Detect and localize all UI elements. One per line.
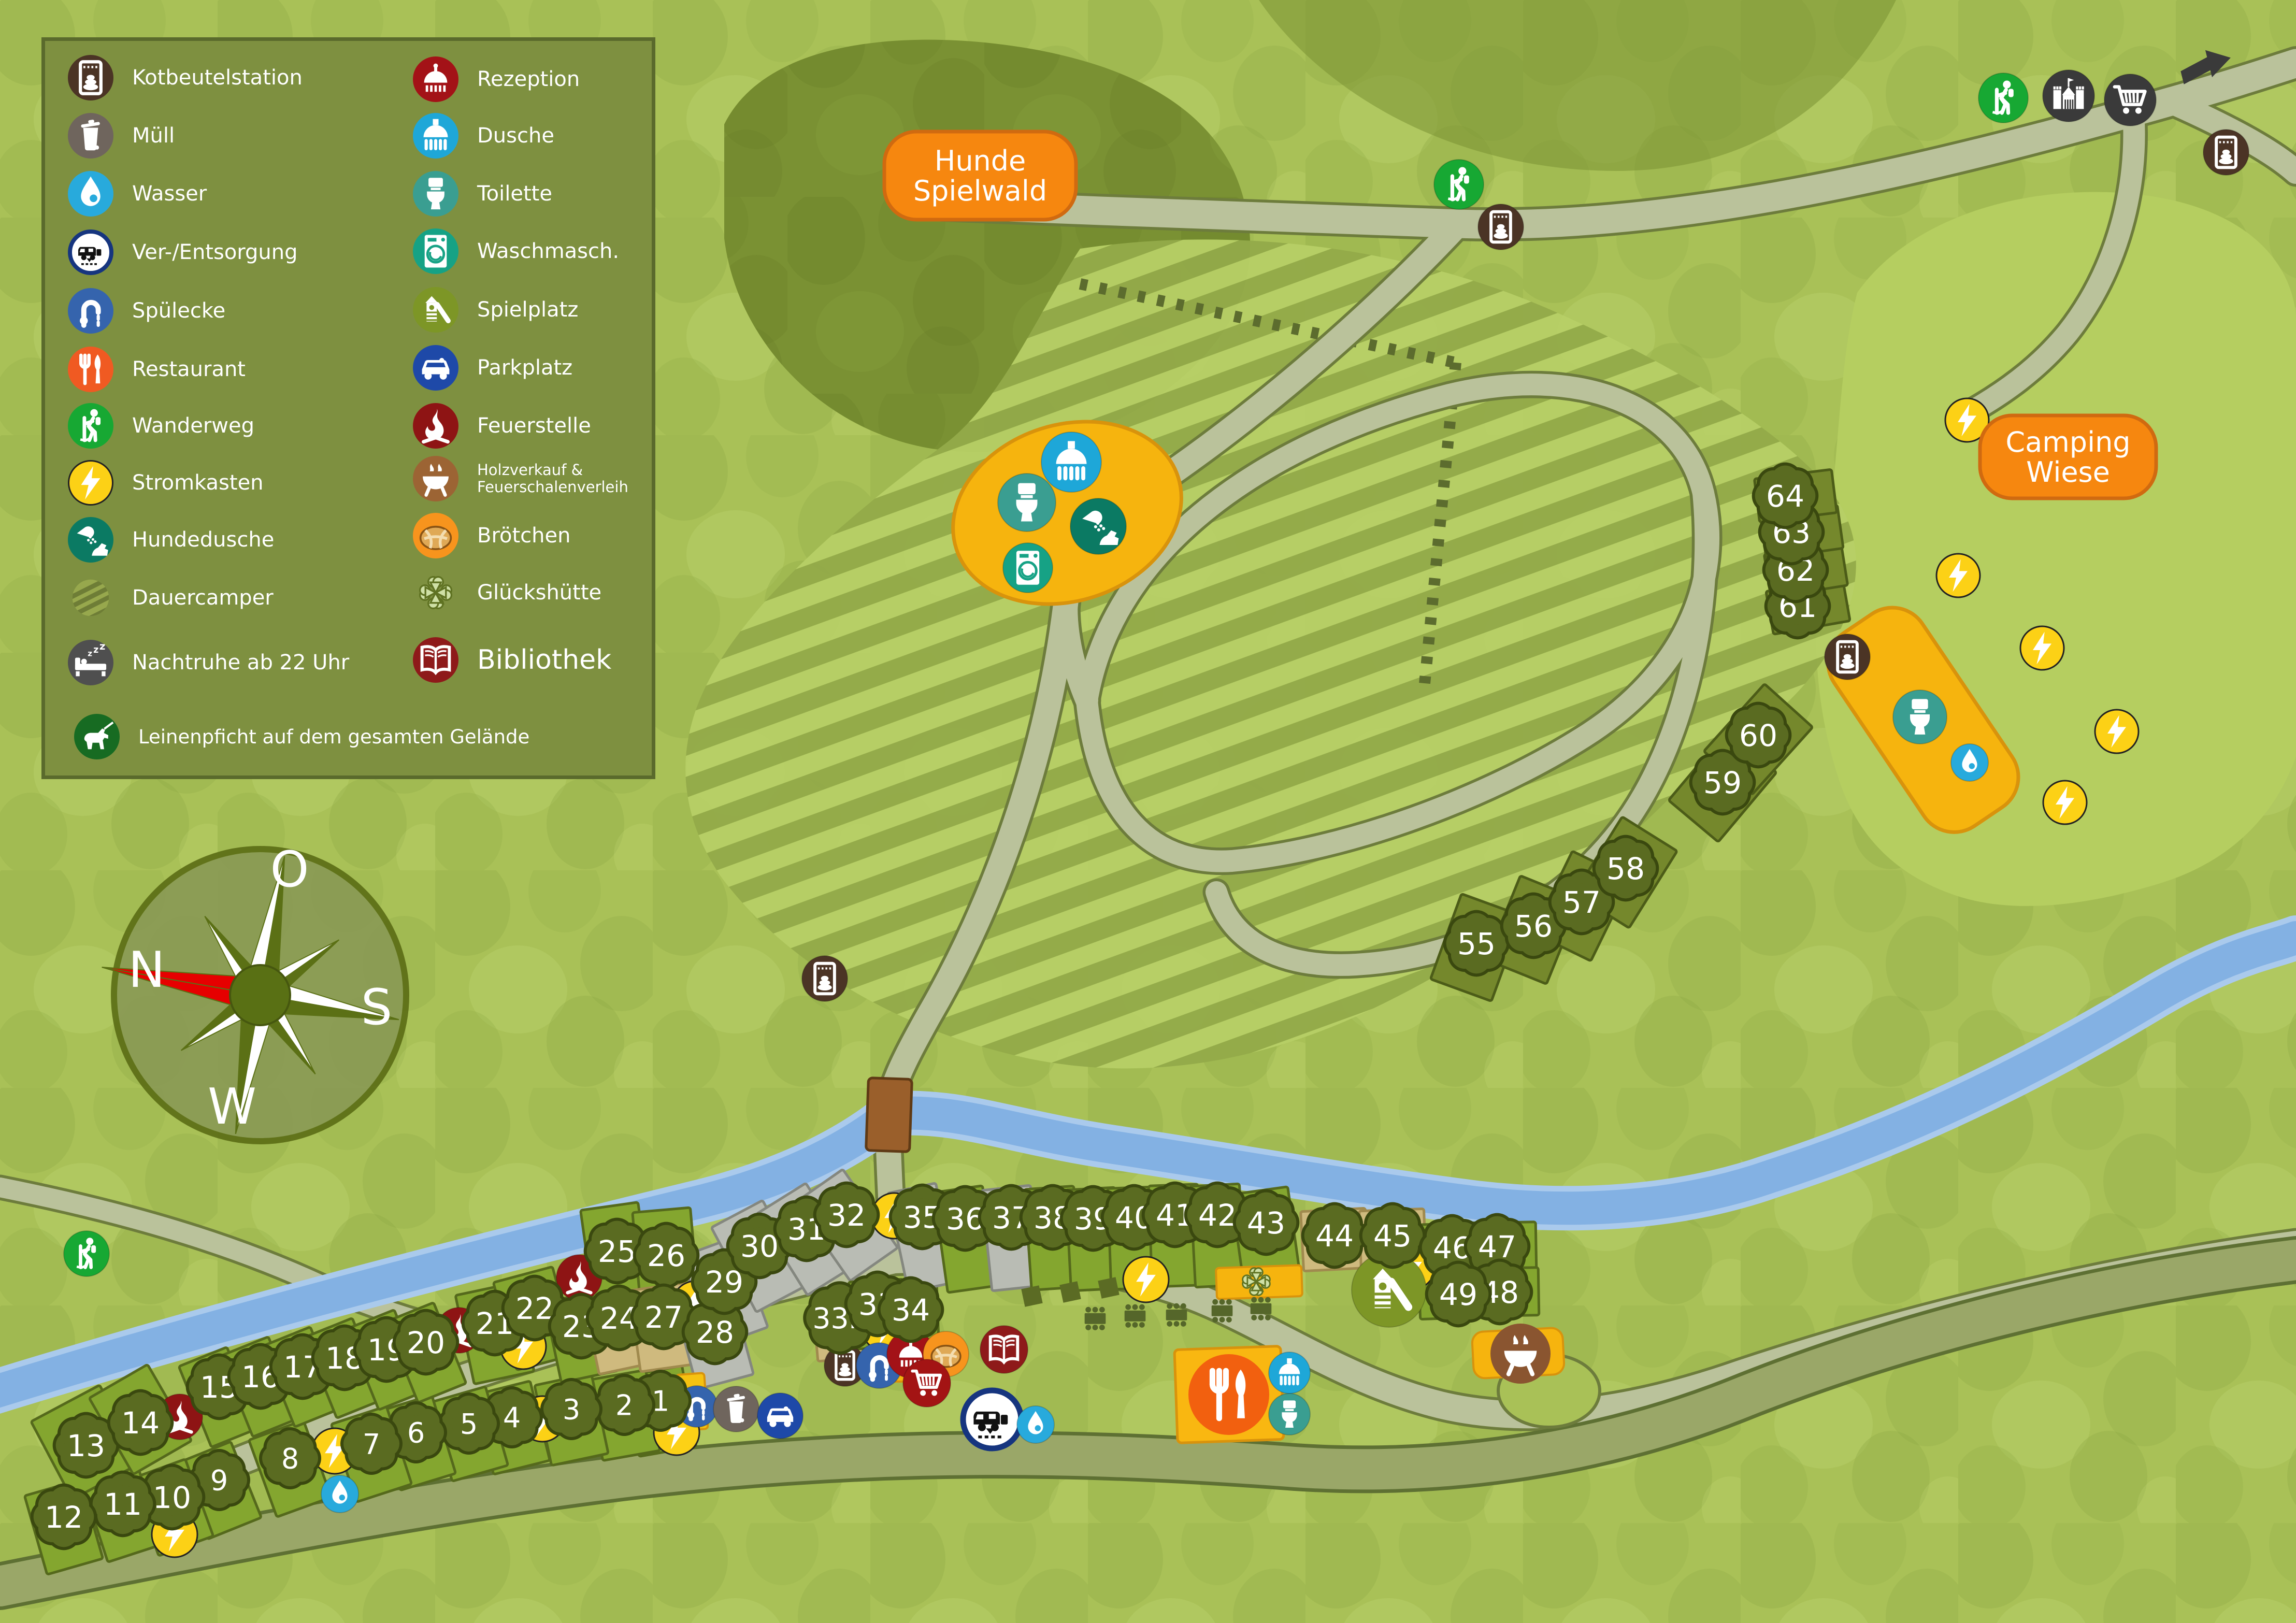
wanderweg-icon (68, 403, 113, 449)
legend-item-wasser: Wasser (68, 171, 207, 217)
legend-label-line: Müll (132, 124, 175, 148)
toilette-icon (1893, 690, 1947, 744)
legend-label-line: Spielplatz (477, 298, 578, 322)
pitch-number: 64 (1766, 479, 1804, 514)
legend-item-dusche: Dusche (413, 113, 554, 159)
pitch-number: 30 (740, 1229, 779, 1264)
legend-label-line: Brötchen (477, 524, 570, 548)
legend-label: Leinenpficht auf dem gesamten Gelände (138, 726, 529, 748)
pitch-number: 8 (281, 1442, 299, 1475)
toilette-icon (1269, 1394, 1310, 1435)
legend-item-leinenpflicht: Leinenpficht auf dem gesamten Gelände (74, 714, 529, 759)
waschmasch-icon (413, 228, 458, 274)
pitch-number: 55 (1457, 926, 1496, 961)
legend-label: Wasser (132, 182, 207, 206)
legend-label-line: Ver-/Entsorgung (132, 240, 298, 264)
nachtruhe-icon: zzz (68, 640, 113, 685)
table-icon (1251, 1297, 1272, 1320)
legend-label-line: Feuerstelle (477, 414, 591, 438)
pitch-badge-3: 3 (540, 1378, 602, 1440)
pitch-badge-20: 20 (393, 1309, 460, 1376)
pitch-number: 9 (210, 1464, 228, 1497)
restaurant-icon (1188, 1354, 1269, 1435)
legend-item-feuerstelle: Feuerstelle (413, 403, 591, 449)
bridge (866, 1078, 912, 1152)
pitch-number: 28 (696, 1315, 734, 1350)
camping-wiese-label: CampingWiese (1980, 415, 2156, 498)
legend-item-bibliothek: Bibliothek (413, 637, 611, 683)
wasser-icon (68, 171, 113, 217)
legend-label-line: Bibliothek (477, 644, 611, 676)
table-icon (1085, 1307, 1106, 1330)
table-icon (1212, 1299, 1233, 1323)
pitch-number: 3 (563, 1393, 580, 1426)
legend-label: Parkplatz (477, 356, 572, 380)
pitch-badge-2: 2 (593, 1374, 655, 1436)
pitch-number: 7 (363, 1428, 380, 1460)
pitch-badge-32: 32 (813, 1182, 880, 1248)
dusche-icon (1269, 1352, 1310, 1394)
spielplatz-icon (413, 287, 458, 333)
legend-item-dauercamper: Dauercamper (68, 575, 274, 621)
pitch-number: 42 (1198, 1198, 1237, 1233)
pitch-number: 56 (1514, 909, 1553, 944)
stromkasten-icon (1123, 1257, 1169, 1302)
waschmasch-icon (1003, 543, 1053, 593)
legend-label-line: Dusche (477, 124, 554, 148)
bibliothek-icon (980, 1326, 1028, 1373)
stromkasten-icon (68, 460, 113, 506)
leinen-icon (74, 714, 120, 759)
legend-label-line: Kotbeutelstation (132, 66, 303, 90)
compass-letter-right: S (361, 979, 392, 1036)
stromkasten-icon (2095, 710, 2139, 753)
pitch-number: 26 (647, 1238, 685, 1273)
pitch-number: 5 (460, 1407, 478, 1440)
legend-label-line: Holzverkauf & (477, 462, 628, 479)
pitch-badge-5: 5 (438, 1392, 500, 1455)
shed-icon (1059, 1281, 1081, 1302)
legend-item-muell: Müll (68, 113, 175, 159)
legend-label-line: Hundedusche (132, 528, 274, 552)
pitch-number: 34 (892, 1292, 930, 1328)
pitch-badge-8: 8 (259, 1427, 321, 1489)
pitch-number: 20 (407, 1325, 445, 1360)
shed-icon (1021, 1285, 1042, 1306)
kotbeutel-icon (2203, 130, 2249, 175)
toilette-icon (998, 473, 1056, 532)
pitch-number: 12 (45, 1500, 83, 1535)
legend-item-hundedusche: Hundedusche (68, 517, 274, 563)
dusche-icon (413, 113, 458, 159)
legend-label: Wanderweg (132, 414, 254, 438)
legend-item-toilette: Toilette (413, 171, 552, 217)
pitch-number: 60 (1739, 718, 1777, 753)
legend-label: Müll (132, 124, 175, 148)
pitch-badge-7: 7 (340, 1413, 403, 1475)
pitch-number: 32 (827, 1198, 866, 1233)
pitch-number: 49 (1439, 1277, 1477, 1312)
svg-text:z: z (93, 645, 98, 655)
pitch-number: 59 (1703, 765, 1742, 800)
compass-letter-bottom: W (208, 1079, 256, 1136)
legend-panel: KotbeutelstationMüllWasserVer-/Entsorgun… (41, 37, 655, 779)
cart-icon (2104, 74, 2156, 126)
pitch-number: 2 (615, 1389, 633, 1421)
legend-label-line: Toilette (477, 182, 552, 206)
pitch-number: 45 (1373, 1218, 1412, 1254)
pitch-badge-58: 58 (1592, 835, 1659, 902)
pitch-badge-26: 26 (633, 1222, 700, 1289)
pitch-badge-11: 11 (90, 1471, 156, 1538)
legend-item-glueckshuette: Glückshütte (413, 570, 601, 615)
legend-label: Holzverkauf &Feuerschalenverleih (477, 462, 628, 496)
kotbeutel-icon (1478, 204, 1524, 250)
castle-icon (2043, 70, 2094, 122)
kotbeutel-icon (802, 956, 848, 1001)
pitch-badge-45: 45 (1359, 1202, 1426, 1269)
pitch-badge-44: 44 (1301, 1202, 1368, 1269)
svg-text:z: z (99, 640, 106, 652)
legend-label: Feuerstelle (477, 414, 591, 438)
legend-label: Toilette (477, 182, 552, 206)
pitch-badge-34: 34 (878, 1276, 944, 1343)
broetchen-icon (413, 513, 458, 558)
verentsorgung-icon (68, 229, 113, 275)
pitch-badge-60: 60 (1725, 702, 1792, 769)
pitch-number: 43 (1247, 1205, 1285, 1241)
table-icon (1166, 1303, 1187, 1327)
kotbeutel-icon (68, 55, 113, 100)
legend-item-kotbeutelstation: Kotbeutelstation (68, 55, 303, 100)
hundedusche-icon (68, 517, 113, 563)
pitch-number: 27 (644, 1300, 683, 1335)
label-line: Camping (2005, 426, 2130, 458)
legend-label-line: Feuerschalenverleih (477, 479, 628, 496)
holzverkauf-icon (1490, 1324, 1551, 1384)
stromkasten-icon (2043, 781, 2087, 824)
restaurant-icon (68, 347, 113, 392)
legend-label-line: Spülecke (132, 299, 225, 323)
legend-label: Dauercamper (132, 586, 274, 610)
muell-icon (713, 1386, 759, 1432)
pitch-number: 4 (503, 1401, 521, 1434)
legend-label-line: Stromkasten (132, 471, 264, 495)
campground-map: 1234567891011121314151617181920212223242… (0, 0, 2296, 1623)
legend-item-parkplatz: Parkplatz (413, 345, 572, 391)
toilette-icon (413, 171, 458, 217)
legend-label: Dusche (477, 124, 554, 148)
legend-label: Rezeption (477, 67, 580, 91)
pitch-badge-43: 43 (1233, 1189, 1300, 1256)
table-icon (1125, 1304, 1146, 1328)
pitch-number: 6 (407, 1416, 425, 1449)
hundedusche-icon (1070, 498, 1126, 554)
legend-label: Stromkasten (132, 471, 264, 495)
kotbeutel-icon (1825, 634, 1870, 680)
pitch-badge-14: 14 (107, 1389, 174, 1456)
hunde-spielwald-label: HundeSpielwald (884, 132, 1076, 220)
parkplatz-icon (757, 1393, 803, 1439)
dauercamper-icon (68, 575, 113, 621)
pitch-number: 44 (1315, 1218, 1354, 1254)
legend-item-wanderweg: Wanderweg (68, 403, 254, 449)
legend-label: Bibliothek (477, 644, 611, 676)
pitch-number: 58 (1606, 851, 1645, 886)
feuerstelle-icon (413, 403, 458, 449)
spuelecke-icon (68, 288, 113, 334)
legend-label-line: Dauercamper (132, 586, 274, 610)
legend-label-line: Nachtruhe ab 22 Uhr (132, 651, 349, 674)
compass-letter-top: O (270, 841, 309, 898)
legend-label-line: Glückshütte (477, 581, 601, 605)
legend-item-nachtruhe: zzzNachtruhe ab 22 Uhr (68, 640, 349, 685)
legend-label-line: Parkplatz (477, 356, 572, 380)
legend-item-ver-entsorgung: Ver-/Entsorgung (68, 229, 298, 275)
pitch-badge-12: 12 (31, 1484, 97, 1550)
legend-label-line: Waschmasch. (477, 239, 619, 263)
legend-label-line: Leinenpficht auf dem gesamten Gelände (138, 726, 529, 748)
legend-label: Spielplatz (477, 298, 578, 322)
legend-item-broetchen: Brötchen (413, 513, 570, 558)
legend-item-spielplatz: Spielplatz (413, 287, 578, 333)
legend-label: Brötchen (477, 524, 570, 548)
pitch-number: 13 (67, 1428, 105, 1463)
legend-item-restaurant: Restaurant (68, 347, 246, 392)
shed-icon (1098, 1277, 1119, 1298)
legend-label-line: Wasser (132, 182, 207, 206)
pitch-number: 57 (1562, 885, 1601, 920)
label-line: Wiese (2026, 456, 2110, 489)
legend-item-rezeption: Rezeption (413, 56, 580, 102)
legend-label-line: Rezeption (477, 67, 580, 91)
muell-icon (68, 113, 113, 159)
legend-label-line: Restaurant (132, 357, 246, 381)
legend-label: Waschmasch. (477, 239, 619, 263)
wasser-icon (1951, 744, 1988, 781)
label-line: Hunde (935, 145, 1026, 177)
pitch-badge-49: 49 (1425, 1261, 1492, 1328)
pitch-number: 10 (153, 1480, 191, 1515)
parkplatz-icon (413, 345, 458, 391)
pitch-number: 25 (598, 1234, 636, 1269)
legend-item-waschmasch: Waschmasch. (413, 228, 619, 274)
holzverkauf-icon (413, 456, 458, 501)
legend-label-line: Wanderweg (132, 414, 254, 438)
legend-item-spuelecke: Spülecke (68, 288, 225, 334)
rezeption-icon (413, 56, 458, 102)
legend-label: Hundedusche (132, 528, 274, 552)
stromkasten-icon (1936, 554, 1980, 597)
legend-label: Kotbeutelstation (132, 66, 303, 90)
cartshop-icon (903, 1359, 951, 1407)
legend-label: Ver-/Entsorgung (132, 240, 298, 264)
wasser-icon (1017, 1406, 1054, 1443)
legend-label: Glückshütte (477, 581, 601, 605)
legend-label: Spülecke (132, 299, 225, 323)
verentsorgung-icon (963, 1390, 1021, 1448)
legend-label: Nachtruhe ab 22 Uhr (132, 651, 349, 674)
pitch-number: 14 (121, 1405, 160, 1441)
wanderweg-icon (64, 1231, 109, 1276)
legend-item-stromkasten: Stromkasten (68, 460, 264, 506)
wanderweg-icon (1434, 160, 1484, 209)
legend-item-holzverkauf: Holzverkauf &Feuerschalenverleih (413, 456, 628, 501)
glueckshuette-icon (413, 570, 458, 615)
label-line: Spielwald (913, 175, 1047, 207)
legend-label: Restaurant (132, 357, 246, 381)
bibliothek-icon (413, 637, 458, 683)
wanderweg-icon (1978, 73, 2028, 123)
compass-letter-left: N (128, 942, 165, 999)
pitch-number: 22 (515, 1291, 554, 1326)
stromkasten-icon (2020, 626, 2064, 670)
pitch-badge-64: 64 (1752, 463, 1819, 529)
wasser-icon (321, 1475, 358, 1513)
dusche-icon (1041, 432, 1101, 492)
pitch-badge-55: 55 (1443, 910, 1510, 977)
svg-text:z: z (88, 649, 92, 658)
pitch-number: 11 (104, 1487, 142, 1522)
